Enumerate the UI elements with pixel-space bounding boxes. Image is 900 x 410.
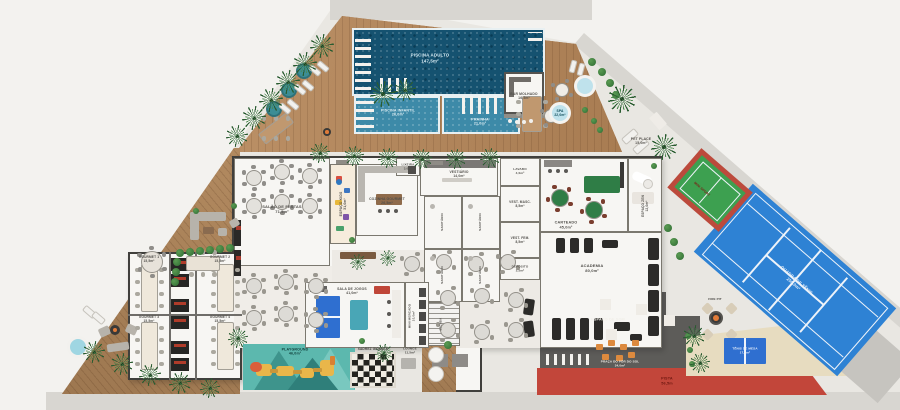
- zone-label: VEST. FEM. 8,5m²: [511, 236, 530, 244]
- chair: [252, 215, 257, 220]
- chair: [474, 340, 479, 345]
- furniture: [171, 341, 189, 354]
- palm-fronds: [114, 356, 131, 373]
- chair: [274, 286, 279, 291]
- furniture: [313, 368, 322, 372]
- chair: [307, 193, 312, 198]
- chair: [201, 272, 205, 276]
- table-round: [585, 201, 603, 219]
- palm-fronds: [296, 55, 314, 73]
- lounger: [91, 311, 106, 325]
- table-round: [246, 310, 262, 326]
- chair: [324, 323, 329, 328]
- palm-fronds: [482, 150, 497, 165]
- zone-label: GOURMET 2 15,5m²: [210, 255, 230, 263]
- chair: [274, 136, 278, 140]
- bush-icon: [173, 258, 181, 266]
- circle-item: [113, 328, 117, 332]
- chair: [242, 210, 247, 215]
- sidewalk-top: [330, 0, 592, 20]
- bush-icon: [676, 252, 684, 260]
- furniture: [556, 238, 565, 253]
- chair: [294, 285, 299, 290]
- in-pool-loungers: [355, 34, 371, 90]
- zone-label: PET PLACE 15,0m²: [631, 137, 651, 146]
- bush-icon: [226, 244, 234, 252]
- chair: [516, 112, 520, 116]
- bush-icon: [172, 268, 180, 276]
- chair: [211, 292, 215, 296]
- chair: [456, 333, 461, 338]
- furniture: [648, 264, 659, 286]
- palm-tree-icon: [683, 325, 705, 347]
- furniture: [648, 238, 659, 260]
- bush-icon: [687, 347, 693, 353]
- zone-label: PLAYGROUND 46,0m²: [282, 348, 309, 357]
- in-pool-loungers: [462, 96, 498, 114]
- palm-fronds: [202, 380, 217, 395]
- masterplan-floor-plan: PISCINA ADULTO 147,5m²PISCINA INFANTIL 2…: [0, 0, 900, 410]
- chair: [602, 214, 607, 219]
- chair: [508, 338, 513, 343]
- chair: [524, 303, 529, 308]
- palm-tree-icon: [242, 106, 266, 130]
- chair: [568, 202, 573, 207]
- chair: [284, 323, 289, 328]
- chair: [308, 185, 313, 190]
- furniture: [636, 304, 647, 315]
- table-round: [302, 168, 318, 184]
- palm-tree-icon: [380, 250, 396, 266]
- chair: [283, 301, 288, 306]
- chair: [456, 301, 461, 306]
- bush-icon: [664, 224, 672, 232]
- table-round: [440, 290, 456, 306]
- chair: [294, 317, 299, 322]
- zone-label: CARTEADO 45,0m²: [555, 220, 578, 229]
- chair: [516, 100, 520, 104]
- furniture: [442, 178, 472, 182]
- furniture: [336, 226, 344, 231]
- chair: [251, 273, 256, 278]
- palm-fronds: [654, 137, 674, 157]
- zone-label: TÊNIS DE MESA 17,5m²: [732, 347, 757, 355]
- zone-label: ACADEMIA 80,0m²: [581, 263, 604, 273]
- chair: [543, 100, 547, 104]
- palm-tree-icon: [651, 134, 677, 160]
- furniture: [602, 240, 618, 248]
- circle-item: [430, 256, 435, 261]
- palm-fronds: [397, 82, 414, 99]
- zone-label: LAVABO 4,0m²: [513, 168, 527, 176]
- furniture: [596, 344, 603, 350]
- palm-tree-icon: [480, 148, 500, 168]
- furniture: [236, 256, 241, 260]
- chair: [242, 290, 247, 295]
- chair: [451, 286, 456, 291]
- chair: [479, 252, 484, 257]
- furniture: [664, 315, 675, 326]
- chair: [211, 280, 215, 284]
- table-round: [246, 170, 262, 186]
- chair: [235, 362, 239, 366]
- table-round: [404, 256, 420, 272]
- chair: [262, 321, 267, 326]
- chair: [251, 165, 256, 170]
- circle-item: [325, 130, 329, 134]
- chair: [138, 267, 143, 272]
- chair: [242, 182, 247, 187]
- palm-fronds: [448, 151, 463, 166]
- chair: [404, 272, 409, 277]
- furniture: [190, 212, 199, 240]
- furniture: [195, 252, 197, 380]
- zone-label: SANITÁRIO: [479, 213, 483, 231]
- palm-fronds: [172, 375, 189, 392]
- furniture: [566, 318, 575, 340]
- table-round: [308, 312, 324, 328]
- furniture: [358, 166, 365, 202]
- chair: [511, 250, 516, 255]
- zone-label: COZINHA GOURMET 26,5m²: [369, 197, 405, 206]
- chair: [490, 335, 495, 340]
- circle-item: [643, 179, 653, 189]
- zone-label: PISTA 56,5m: [661, 376, 673, 385]
- palm-tree-icon: [310, 34, 334, 58]
- palm-fronds: [352, 256, 364, 268]
- furniture: [608, 340, 615, 346]
- chair: [304, 290, 309, 295]
- bush-icon: [598, 68, 606, 76]
- table-round: [274, 164, 290, 180]
- palm-tree-icon: [690, 353, 710, 373]
- chair: [314, 329, 319, 334]
- chair: [235, 292, 239, 296]
- circle-item: [468, 256, 473, 261]
- furniture: [174, 361, 186, 364]
- palm-fronds: [262, 91, 280, 109]
- chair: [283, 269, 288, 274]
- pool-steps: [528, 32, 542, 41]
- furniture: [250, 362, 262, 372]
- bush-icon: [196, 247, 204, 255]
- furniture: [570, 238, 579, 253]
- chair: [313, 307, 318, 312]
- zone-label: ESCADA: [439, 318, 442, 331]
- furniture: [330, 356, 335, 365]
- chair: [252, 327, 257, 332]
- chair: [279, 189, 284, 194]
- furniture: [628, 352, 635, 358]
- palm-tree-icon: [350, 254, 366, 270]
- palm-tree-icon: [111, 353, 133, 375]
- furniture: [419, 288, 426, 297]
- furniture: [600, 299, 611, 310]
- chair: [452, 265, 457, 270]
- chair: [280, 181, 285, 186]
- furniture: [620, 162, 624, 188]
- zone-label: ESPAÇO ZEN 12,0m²: [641, 195, 649, 217]
- bush-icon: [231, 203, 237, 209]
- palm-fronds: [313, 37, 331, 55]
- chair: [516, 124, 520, 128]
- circle-item: [428, 347, 444, 363]
- palm-tree-icon: [608, 85, 636, 113]
- chair: [211, 304, 215, 308]
- palm-tree-icon: [200, 378, 220, 398]
- bush-icon: [176, 249, 184, 257]
- furniture: [174, 319, 186, 322]
- table-round: [278, 306, 294, 322]
- furniture: [236, 226, 241, 230]
- chair: [159, 280, 163, 284]
- chair: [546, 197, 551, 202]
- furniture: [171, 316, 189, 329]
- furniture: [270, 369, 278, 373]
- palm-tree-icon: [276, 70, 300, 94]
- chair: [135, 338, 139, 342]
- chair: [485, 284, 490, 289]
- furniture: [648, 316, 659, 336]
- circle-item: [574, 75, 596, 97]
- circle-item: [430, 204, 435, 209]
- palm-fronds: [245, 109, 263, 127]
- table-round: [246, 278, 262, 294]
- chair: [308, 215, 313, 220]
- palm-tree-icon: [83, 341, 105, 363]
- furniture: [584, 176, 620, 193]
- palm-tree-icon: [412, 149, 432, 169]
- bush-icon: [171, 278, 179, 286]
- zone-label: PRAÇA DO PÔR DO SOL 34,0m²: [601, 360, 639, 368]
- zone-label: LIXEIRA 3,0m²: [402, 163, 415, 171]
- zone-label: PISCINA ADULTO 147,5m²: [411, 53, 450, 64]
- furniture: [300, 368, 314, 378]
- chair: [159, 326, 163, 330]
- chair: [235, 280, 239, 284]
- chair: [242, 322, 247, 327]
- bush-icon: [670, 238, 678, 246]
- bush-icon: [359, 338, 365, 344]
- furniture: [419, 312, 426, 321]
- palm-fronds: [279, 73, 297, 91]
- furniture: [234, 250, 241, 276]
- furniture: [584, 238, 593, 253]
- palm-tree-icon: [310, 143, 330, 163]
- chair: [318, 179, 323, 184]
- zone-label: SANITÁRIO: [441, 213, 445, 231]
- palm-tree-icon: [293, 52, 317, 76]
- chair: [135, 362, 139, 366]
- palm-tree-icon: [446, 149, 466, 169]
- chair: [284, 291, 289, 296]
- chair: [500, 270, 505, 275]
- zone-label: SALA DE JOGOS 41,0m²: [337, 287, 367, 296]
- palm-fronds: [229, 128, 246, 145]
- table-round: [555, 83, 569, 97]
- chair: [508, 308, 513, 313]
- chair: [235, 268, 239, 272]
- table-round: [551, 189, 569, 207]
- furniture: [203, 227, 214, 234]
- zone-label: PISCINA INFANTIL 26,0m²: [381, 109, 415, 118]
- zone-label: ESPAÇO KIDS 31,0m²: [339, 192, 348, 217]
- zone-label: SANITÁRIO: [479, 266, 483, 284]
- table-round: [308, 278, 324, 294]
- chair: [290, 175, 295, 180]
- palm-tree-icon: [228, 328, 248, 348]
- furniture: [419, 324, 426, 333]
- zone-label: SPA 22,0m²: [554, 109, 565, 117]
- bush-icon: [186, 248, 194, 256]
- furniture: [419, 300, 426, 309]
- bush-icon: [206, 246, 214, 254]
- chair: [135, 304, 139, 308]
- chair: [440, 306, 445, 311]
- chair: [286, 116, 290, 120]
- palm-fronds: [686, 328, 703, 345]
- table-round: [508, 292, 524, 308]
- bush-icon: [193, 208, 199, 214]
- furniture: [171, 299, 189, 312]
- furniture: [374, 286, 390, 294]
- furniture: [580, 318, 589, 340]
- chair: [324, 289, 329, 294]
- chair: [211, 338, 215, 342]
- circle-item: [713, 315, 719, 321]
- furniture: [419, 336, 426, 345]
- palm-tree-icon: [139, 364, 161, 386]
- zone-label: SALÃO DE FESTAS 71,5m²: [262, 204, 302, 214]
- palm-fronds: [380, 150, 395, 165]
- furniture: [606, 329, 617, 340]
- zone-label: PRAINHA 21,0m²: [471, 118, 488, 127]
- zone-label: ESPAÇO DE SOM: [591, 318, 625, 323]
- palm-fronds: [414, 151, 429, 166]
- bush-icon: [349, 237, 355, 243]
- chair: [451, 318, 456, 323]
- zone-label: GOURMET 1 15,5m²: [139, 255, 159, 263]
- bush-icon: [216, 245, 224, 253]
- chair: [211, 362, 215, 366]
- furniture: [452, 354, 468, 367]
- palm-fronds: [611, 88, 632, 109]
- furniture: [350, 300, 368, 330]
- chair: [149, 246, 154, 251]
- chair: [313, 273, 318, 278]
- chair: [415, 252, 420, 257]
- circle-item: [468, 204, 473, 209]
- zone-label: VEST. MASC. 8,5m²: [509, 200, 531, 208]
- table-rect: [522, 96, 542, 132]
- palm-fronds: [230, 330, 245, 345]
- circle-item: [428, 366, 444, 382]
- chair: [474, 304, 479, 309]
- bush-icon: [582, 107, 588, 113]
- chair: [135, 326, 139, 330]
- chair: [279, 159, 284, 164]
- furniture: [174, 302, 186, 305]
- bush-icon: [444, 341, 452, 349]
- chair: [519, 318, 524, 323]
- chair: [447, 250, 452, 255]
- furniture: [218, 228, 227, 236]
- circle-item: [336, 179, 342, 185]
- zone-label: FIRE PIT: [708, 298, 722, 302]
- chair: [524, 333, 529, 338]
- zone-label: SANITÁRIO: [441, 266, 445, 284]
- bush-icon: [606, 79, 614, 87]
- table-round: [302, 198, 318, 214]
- chair: [135, 280, 139, 284]
- furniture: [276, 366, 294, 376]
- palm-tree-icon: [169, 372, 191, 394]
- furniture: [648, 290, 659, 312]
- zone-label: LOUNGE 11,5m²: [403, 347, 417, 355]
- palm-fronds: [142, 367, 159, 384]
- palm-tree-icon: [378, 148, 398, 168]
- chair: [580, 209, 585, 214]
- table-round: [508, 322, 524, 338]
- chair: [468, 272, 473, 277]
- furniture: [293, 370, 302, 374]
- chair: [251, 305, 256, 310]
- furniture: [392, 290, 401, 338]
- chair: [159, 338, 163, 342]
- chair: [159, 292, 163, 296]
- chair: [485, 320, 490, 325]
- table-rect: [217, 264, 234, 312]
- chair: [484, 267, 489, 272]
- zone-label: XADREZ GIGANTE: [358, 347, 389, 351]
- chair: [235, 350, 239, 354]
- bush-icon: [591, 118, 597, 124]
- chair: [235, 304, 239, 308]
- palm-fronds: [373, 84, 393, 104]
- table-rect: [141, 322, 158, 370]
- table-round: [278, 274, 294, 290]
- bush-icon: [651, 163, 657, 169]
- chair: [211, 326, 215, 330]
- chair: [567, 187, 572, 192]
- chair: [307, 163, 312, 168]
- furniture: [171, 358, 189, 371]
- chair: [252, 187, 257, 192]
- chair: [212, 272, 216, 276]
- palm-fronds: [692, 355, 707, 370]
- furniture: [544, 160, 572, 167]
- zone-label: GOURMET 4 15,5m²: [210, 315, 230, 323]
- palm-tree-icon: [394, 79, 416, 101]
- palm-tree-icon: [259, 88, 283, 112]
- palm-tree-icon: [370, 81, 396, 107]
- furniture: [552, 318, 561, 340]
- chair: [262, 181, 267, 186]
- chair: [270, 176, 275, 181]
- chair: [519, 288, 524, 293]
- palm-fronds: [312, 145, 327, 160]
- chair: [314, 295, 319, 300]
- palm-fronds: [346, 148, 361, 163]
- chair: [601, 199, 606, 204]
- chair: [318, 209, 323, 214]
- chair: [135, 350, 139, 354]
- zone-label: DEPÓSITO 2,5m²: [512, 265, 529, 273]
- chair: [262, 289, 267, 294]
- furniture: [174, 344, 186, 347]
- chair: [286, 136, 290, 140]
- palm-fronds: [382, 252, 394, 264]
